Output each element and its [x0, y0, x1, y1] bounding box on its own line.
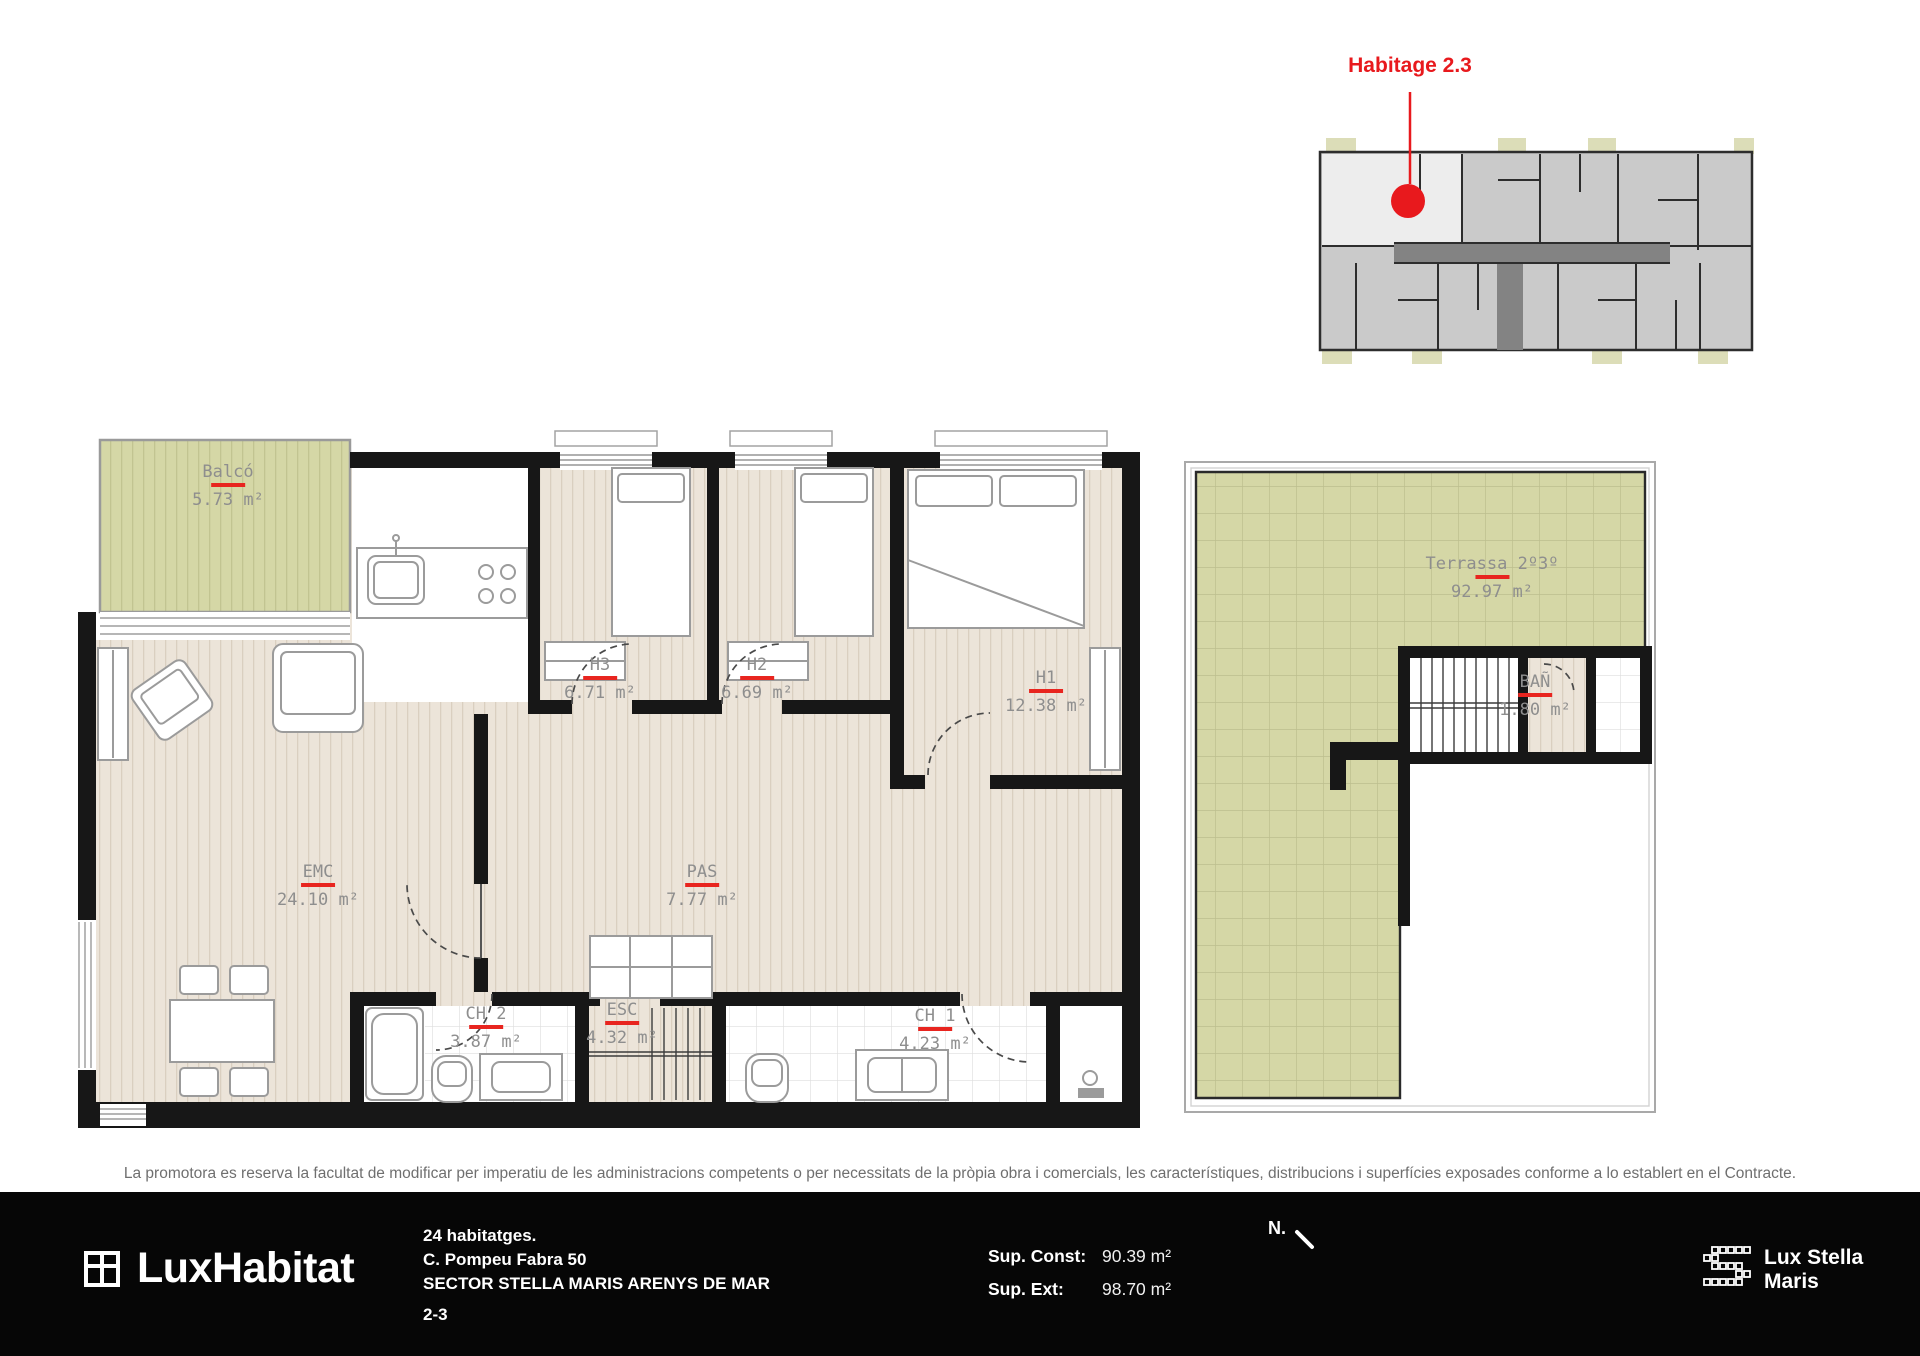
- room-name: H1: [1005, 668, 1087, 688]
- room-area: 92.97 m²: [1425, 582, 1558, 602]
- project-line: C. Pompeu Fabra 50: [423, 1248, 770, 1272]
- chair: [180, 1068, 218, 1096]
- room-area: 5.73 m²: [192, 490, 264, 510]
- red-underline: [211, 483, 245, 487]
- red-underline: [1518, 693, 1552, 697]
- room-area: 6.71 m²: [564, 683, 636, 703]
- red-underline: [685, 883, 719, 887]
- window-sills: [555, 431, 1107, 446]
- project-line: SECTOR STELLA MARIS ARENYS DE MAR: [423, 1272, 770, 1296]
- key-plan: [1320, 92, 1754, 364]
- room-name: Terrassa 2º3º: [1425, 554, 1558, 574]
- terrace-area: [1185, 462, 1655, 1112]
- north-label: N.: [1268, 1218, 1286, 1239]
- room-label-esc: ESC 4.32 m²: [586, 1000, 658, 1049]
- chair: [180, 966, 218, 994]
- surface-info: Sup. Const: 90.39 m² Sup. Ext: 98.70 m²: [988, 1240, 1171, 1306]
- bottom-window: [100, 1104, 146, 1126]
- side-window: [74, 920, 96, 1070]
- chair: [230, 966, 268, 994]
- room-label-ch1: CH 1 4.23 m²: [899, 1006, 971, 1055]
- red-underline: [469, 1025, 503, 1029]
- red-underline: [918, 1027, 952, 1031]
- red-underline: [740, 676, 774, 680]
- room-area: 4.23 m²: [899, 1034, 971, 1054]
- north-arrow-icon: [1293, 1228, 1319, 1254]
- room-area: 1.80 m²: [1499, 700, 1571, 720]
- sup-const-label: Sup. Const:: [988, 1240, 1102, 1273]
- floorplan-drawing: [0, 0, 1920, 1160]
- unit-callout: Habitage 2.3: [1348, 54, 1472, 78]
- red-underline: [1475, 575, 1509, 579]
- luxhabitat-logo: LuxHabitat: [82, 1244, 354, 1293]
- room-label-ch2: CH 2 3.87 m²: [450, 1004, 522, 1053]
- room-name: Balcó: [192, 462, 264, 482]
- north-indicator: N.: [1268, 1218, 1319, 1254]
- brochure-page: Habitage 2.3 Balcó 5.73 m² H3 6.71 m² H2…: [0, 0, 1920, 1356]
- room-label-ban: BAÑ 1.80 m²: [1499, 672, 1571, 721]
- room-label-h2: H2 6.69 m²: [721, 655, 793, 704]
- project-line: 24 habitatges.: [423, 1224, 770, 1248]
- balcony-window: [100, 612, 350, 640]
- room-area: 7.77 m²: [666, 890, 738, 910]
- red-underline: [1029, 689, 1063, 693]
- room-label-h1: H1 12.38 m²: [1005, 668, 1087, 717]
- project-info: 24 habitatges. C. Pompeu Fabra 50 SECTOR…: [423, 1224, 770, 1327]
- room-label-terrassa: Terrassa 2º3º 92.97 m²: [1425, 554, 1558, 603]
- sup-const-value: 90.39 m²: [1102, 1240, 1171, 1273]
- room-name: BAÑ: [1499, 672, 1571, 692]
- room-name: ESC: [586, 1000, 658, 1020]
- room-label-emc: EMC 24.10 m²: [277, 862, 359, 911]
- terrace-floor: [1196, 472, 1645, 1098]
- chair: [230, 1068, 268, 1096]
- room-label-pas: PAS 7.77 m²: [666, 862, 738, 911]
- room-label-balco: Balcó 5.73 m²: [192, 462, 264, 511]
- sup-ext-label: Sup. Ext:: [988, 1273, 1102, 1306]
- red-underline: [605, 1021, 639, 1025]
- luxhabitat-logo-icon: [82, 1249, 122, 1289]
- stella-maris-logo-icon: [1703, 1246, 1751, 1288]
- surface-row: Sup. Ext: 98.70 m²: [988, 1273, 1171, 1306]
- key-plan-corridor-stub: [1497, 263, 1523, 350]
- room-area: 12.38 m²: [1005, 696, 1087, 716]
- brand-name: LuxHabitat: [137, 1244, 354, 1293]
- partner-name: Lux Stella Maris: [1764, 1246, 1863, 1294]
- room-name: H2: [721, 655, 793, 675]
- footer: LuxHabitat 24 habitatges. C. Pompeu Fabr…: [0, 1192, 1920, 1356]
- surface-row: Sup. Const: 90.39 m²: [988, 1240, 1171, 1273]
- room-area: 6.69 m²: [721, 683, 793, 703]
- room-name: PAS: [666, 862, 738, 882]
- disclaimer-text: La promotora es reserva la facultat de m…: [0, 1156, 1920, 1192]
- room-area: 3.87 m²: [450, 1032, 522, 1052]
- stella-maris-logo: Lux Stella Maris: [1703, 1246, 1863, 1294]
- room-name: CH 2: [450, 1004, 522, 1024]
- sup-ext-value: 98.70 m²: [1102, 1273, 1171, 1306]
- room-area: 24.10 m²: [277, 890, 359, 910]
- key-plan-corridor: [1394, 243, 1670, 263]
- utility-floor: [1060, 1006, 1122, 1102]
- unit-location-dot: [1391, 184, 1425, 218]
- room-name: EMC: [277, 862, 359, 882]
- room-name: CH 1: [899, 1006, 971, 1026]
- project-line: 2-3: [423, 1303, 770, 1327]
- room-label-h3: H3 6.71 m²: [564, 655, 636, 704]
- room-area: 4.32 m²: [586, 1028, 658, 1048]
- room-name: H3: [564, 655, 636, 675]
- dining-table: [170, 1000, 274, 1062]
- red-underline: [301, 883, 335, 887]
- red-underline: [583, 676, 617, 680]
